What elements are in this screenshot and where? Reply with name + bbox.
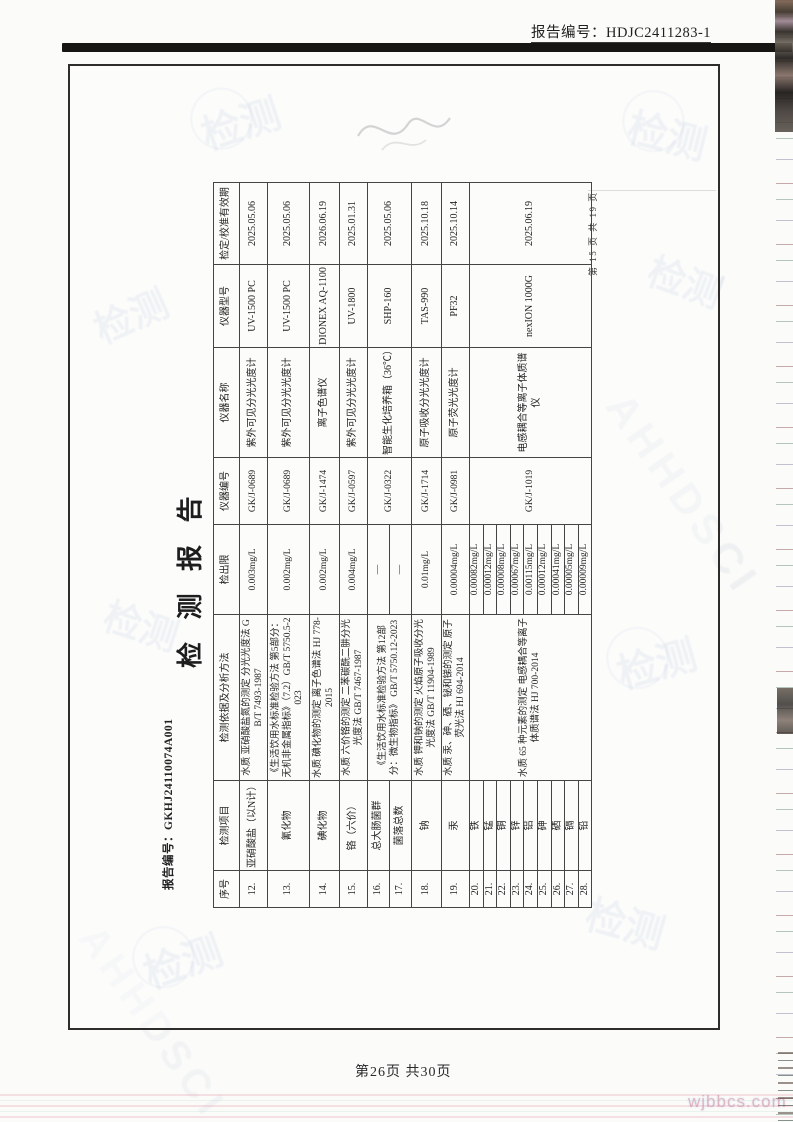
cell-limit: 0.00041mg/L xyxy=(551,525,565,615)
cell-item: 总大肠菌群 xyxy=(368,781,390,871)
cell-limit: — xyxy=(368,525,390,615)
cell-validity: 2025.05.06 xyxy=(368,183,412,265)
cell-limit: 0.00012mg/L xyxy=(538,525,552,615)
cell-item: 铅 xyxy=(578,781,592,871)
col-header-serial: 序号 xyxy=(214,871,240,908)
cell-instrument-no: GK/J-1714 xyxy=(412,458,442,525)
cell-item: 氰化物 xyxy=(268,781,310,871)
cell-method: 水质 亚硝酸盐氮的测定 分光光度法 GB/T 7493-1987 xyxy=(240,615,268,781)
cell-instrument-no: GK/J-0597 xyxy=(340,458,368,525)
cell-limit: 0.00005mg/L xyxy=(565,525,579,615)
cell-item: 硒 xyxy=(551,781,565,871)
cell-method: 水质 碘化物的测定 离子色谱法 HJ 778-2015 xyxy=(310,615,340,781)
cell-validity: 2026.06.19 xyxy=(310,183,340,265)
cell-serial: 21. xyxy=(483,871,497,908)
table-header-row: 序号 检测项目 检测依据及分析方法 检出限 仪器编号 仪器名称 仪器型号 检定/… xyxy=(214,183,240,908)
cell-item: 钠 xyxy=(412,781,442,871)
cell-serial: 24. xyxy=(524,871,538,908)
cell-instrument-name: 离子色谱仪 xyxy=(310,348,340,458)
test-results-table: 序号 检测项目 检测依据及分析方法 检出限 仪器编号 仪器名称 仪器型号 检定/… xyxy=(213,182,592,908)
cell-method: 水质 65 种元素的测定 电感耦合等离子体质谱法 HJ 700-2014 xyxy=(470,615,592,781)
scanned-report-page: 报告编号：HDJC2411283-1 检测 检测 检测 检测 检测 检测 检测 … xyxy=(0,0,793,1122)
cell-item: 砷 xyxy=(538,781,552,871)
cell-serial: 25. xyxy=(538,871,552,908)
cell-instrument-model: UV-1800 xyxy=(340,265,368,348)
cell-instrument-name: 原子荧光光度计 xyxy=(442,348,470,458)
col-header-instrument-no: 仪器编号 xyxy=(214,458,240,525)
cell-instrument-name: 智能生化培养箱（36℃） xyxy=(368,348,412,458)
cell-serial: 12. xyxy=(240,871,268,908)
table-row: 19. 汞 水质 汞、砷、硒、铋和锑的测定 原子荧光法 HJ 694-2014 … xyxy=(442,183,470,908)
cell-item: 铁 xyxy=(470,781,484,871)
cell-item: 碘化物 xyxy=(310,781,340,871)
handwritten-mark xyxy=(352,102,472,162)
cell-serial: 28. xyxy=(578,871,592,908)
cell-item: 菌落总数 xyxy=(390,781,412,871)
cell-instrument-no: GK/J-0689 xyxy=(240,458,268,525)
cell-limit: 0.00009mg/L xyxy=(578,525,592,615)
report-number-top: 报告编号：HDJC2411283-1 xyxy=(531,21,711,44)
cell-item: 铜 xyxy=(497,781,511,871)
cell-instrument-model: SHP-160 xyxy=(368,265,412,348)
cell-serial: 15. xyxy=(340,871,368,908)
cell-method: 《生活饮用水标准检验方法 第5部分：无机非金属指标》（7.2）GB/T 5750… xyxy=(268,615,310,781)
cell-limit: 0.00115mg/L xyxy=(524,525,538,615)
cell-instrument-model: PF32 xyxy=(442,265,470,348)
cell-limit: 0.004mg/L xyxy=(340,525,368,615)
cell-serial: 16. xyxy=(368,871,390,908)
cell-instrument-no: GK/J-0689 xyxy=(268,458,310,525)
table-row: 18. 钠 水质 钾和钠的测定 火焰原子吸收分光光度法 GB/T 11904-1… xyxy=(412,183,442,908)
col-header-limit: 检出限 xyxy=(214,525,240,615)
cell-serial: 18. xyxy=(412,871,442,908)
cell-serial: 13. xyxy=(268,871,310,908)
cell-validity: 2025.10.14 xyxy=(442,183,470,265)
footer-page-number: 第26页 共30页 xyxy=(355,1061,495,1081)
cell-method: 水质 六价铬的测定 二苯碳酰二肼分光光度法 GB/T 7467-1987 xyxy=(340,615,368,781)
cell-item: 锰 xyxy=(483,781,497,871)
cell-item: 锌 xyxy=(510,781,524,871)
cell-validity: 2025.10.18 xyxy=(412,183,442,265)
col-header-instrument-model: 仪器型号 xyxy=(214,265,240,348)
col-header-item: 检测项目 xyxy=(214,781,240,871)
cell-item: 汞 xyxy=(442,781,470,871)
internal-report-number: 报告编号：GKHJ24110074A001 xyxy=(160,640,180,890)
scan-lines-bottom xyxy=(0,1094,793,1122)
cell-method: 《生活饮用水标准检验方法 第12部分：微生物指标》 GB/T 5750.12-2… xyxy=(368,615,412,781)
cell-limit: 0.00008mg/L xyxy=(497,525,511,615)
cell-instrument-name: 电感耦合等离子体质谱仪 xyxy=(470,348,592,458)
cell-serial: 27. xyxy=(565,871,579,908)
cell-serial: 20. xyxy=(470,871,484,908)
table-row: 12. 亚硝酸盐（以N计） 水质 亚硝酸盐氮的测定 分光光度法 GB/T 749… xyxy=(240,183,268,908)
cell-validity: 2025.05.06 xyxy=(240,183,268,265)
table-row: 15. 铬（六价） 水质 六价铬的测定 二苯碳酰二肼分光光度法 GB/T 746… xyxy=(340,183,368,908)
cell-validity: 2025.06.19 xyxy=(470,183,592,265)
cell-serial: 23. xyxy=(510,871,524,908)
scan-artifact-strip xyxy=(776,0,793,1122)
cell-limit: — xyxy=(390,525,412,615)
table-row: 20. 铁 水质 65 种元素的测定 电感耦合等离子体质谱法 HJ 700-20… xyxy=(470,183,484,908)
cell-limit: 0.002mg/L xyxy=(310,525,340,615)
paper-crease-line xyxy=(588,190,716,191)
cell-instrument-model: TAS-990 xyxy=(412,265,442,348)
cell-method: 水质 汞、砷、硒、铋和锑的测定 原子荧光法 HJ 694-2014 xyxy=(442,615,470,781)
cell-instrument-model: UV-1500 PC xyxy=(240,265,268,348)
col-header-instrument-name: 仪器名称 xyxy=(214,348,240,458)
cell-instrument-no: GK/J-1474 xyxy=(310,458,340,525)
cell-limit: 0.01mg/L xyxy=(412,525,442,615)
cell-instrument-name: 原子吸收分光光度计 xyxy=(412,348,442,458)
cell-limit: 0.002mg/L xyxy=(268,525,310,615)
cell-instrument-model: DIONEX AQ-1100 xyxy=(310,265,340,348)
cell-item: 镉 xyxy=(565,781,579,871)
table-row: 14. 碘化物 水质 碘化物的测定 离子色谱法 HJ 778-2015 0.00… xyxy=(310,183,340,908)
cell-item: 铬（六价） xyxy=(340,781,368,871)
cell-instrument-name: 紫外可见分光光度计 xyxy=(240,348,268,458)
cell-serial: 26. xyxy=(551,871,565,908)
cell-instrument-model: nexION 1000G xyxy=(470,265,592,348)
cell-limit: 0.00082mg/L xyxy=(470,525,484,615)
cell-instrument-name: 紫外可见分光光度计 xyxy=(268,348,310,458)
cell-serial: 17. xyxy=(390,871,412,908)
cell-instrument-no: GK/J-0981 xyxy=(442,458,470,525)
scan-artifact-blob xyxy=(778,1052,793,1122)
cell-instrument-name: 紫外可见分光光度计 xyxy=(340,348,368,458)
cell-item: 铝 xyxy=(524,781,538,871)
cell-limit: 0.00012mg/L xyxy=(483,525,497,615)
col-header-validity: 检定/校准有效期 xyxy=(214,183,240,265)
cell-instrument-model: UV-1500 PC xyxy=(268,265,310,348)
cell-serial: 22. xyxy=(497,871,511,908)
scan-artifact-top xyxy=(775,0,793,132)
cell-method: 水质 钾和钠的测定 火焰原子吸收分光光度法 GB/T 11904-1989 xyxy=(412,615,442,781)
cell-validity: 2025.01.31 xyxy=(340,183,368,265)
cell-limit: 0.00004mg/L xyxy=(442,525,470,615)
header-divider-bar xyxy=(62,43,792,52)
table-row: 16. 总大肠菌群 《生活饮用水标准检验方法 第12部分：微生物指标》 GB/T… xyxy=(368,183,390,908)
cell-limit: 0.003mg/L xyxy=(240,525,268,615)
scan-artifact-blob xyxy=(777,688,793,734)
col-header-method: 检测依据及分析方法 xyxy=(214,615,240,781)
cell-limit: 0.00067mg/L xyxy=(510,525,524,615)
table-row: 13. 氰化物 《生活饮用水标准检验方法 第5部分：无机非金属指标》（7.2）G… xyxy=(268,183,310,908)
cell-serial: 19. xyxy=(442,871,470,908)
cell-item: 亚硝酸盐（以N计） xyxy=(240,781,268,871)
cell-serial: 14. xyxy=(310,871,340,908)
cell-validity: 2025.05.06 xyxy=(268,183,310,265)
cell-instrument-no: GK/J-1019 xyxy=(470,458,592,525)
cell-instrument-no: GK/J-0322 xyxy=(368,458,412,525)
test-results-table-wrap: 序号 检测项目 检测依据及分析方法 检出限 仪器编号 仪器名称 仪器型号 检定/… xyxy=(213,183,587,908)
